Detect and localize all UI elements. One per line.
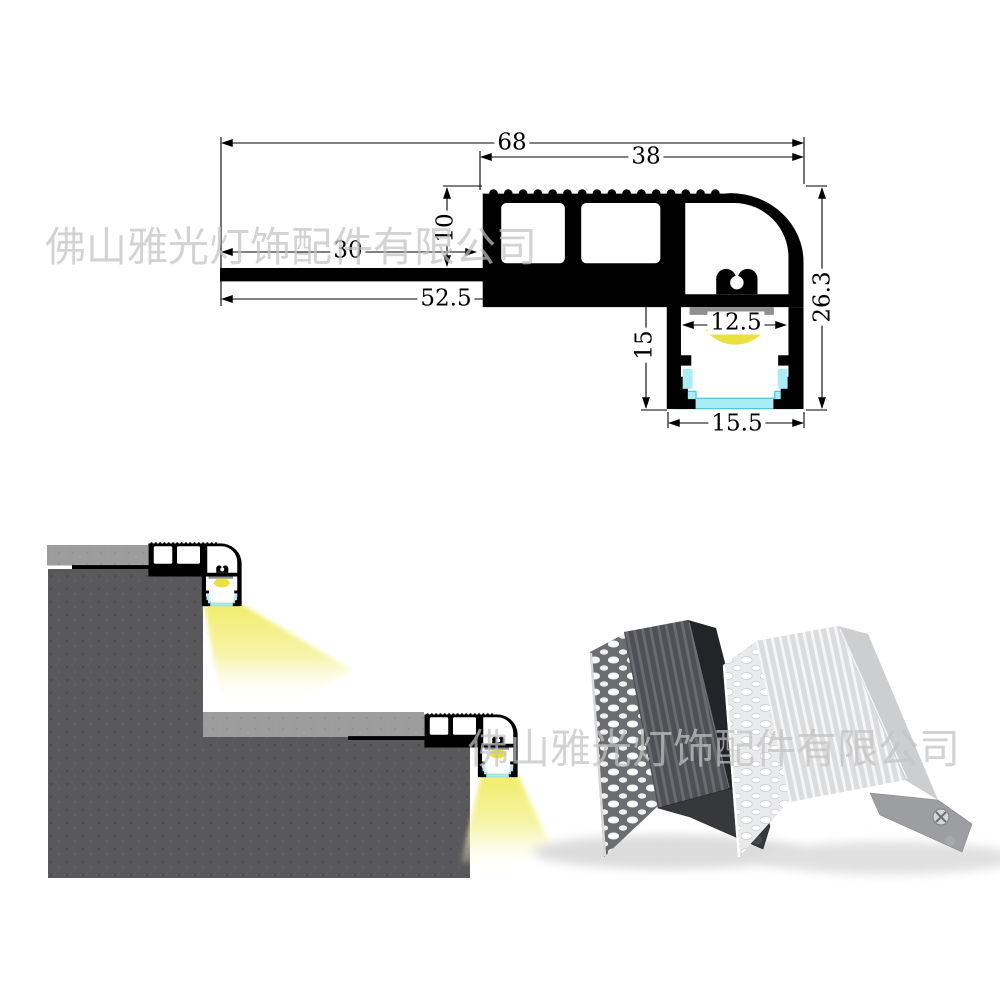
dim-top-section-width: 38 — [628, 146, 663, 169]
dim-led-opening-width: 12.5 — [707, 312, 764, 335]
product-image-page: 68 38 10 30 52.5 15 12.5 26.3 15.5 佛山雅光灯… — [0, 0, 1000, 1000]
silver-profile-corner-detail — [945, 836, 955, 846]
company-watermark-top: 佛山雅光灯饰配件有限公司 — [45, 213, 537, 273]
dim-channel-outer-width: 15.5 — [708, 413, 765, 436]
light-beam-upper — [204, 604, 352, 702]
dim-overall-height: 26.3 — [812, 268, 835, 325]
dim-channel-height: 15 — [634, 327, 657, 362]
dim-overall-width: 68 — [494, 132, 529, 155]
company-watermark-bottom: 佛山雅光灯饰配件有限公司 — [468, 715, 960, 775]
technical-drawing — [220, 137, 827, 428]
installation-diagram — [47, 542, 550, 878]
dim-base-length: 52.5 — [417, 288, 474, 311]
screw-icon — [933, 809, 949, 825]
